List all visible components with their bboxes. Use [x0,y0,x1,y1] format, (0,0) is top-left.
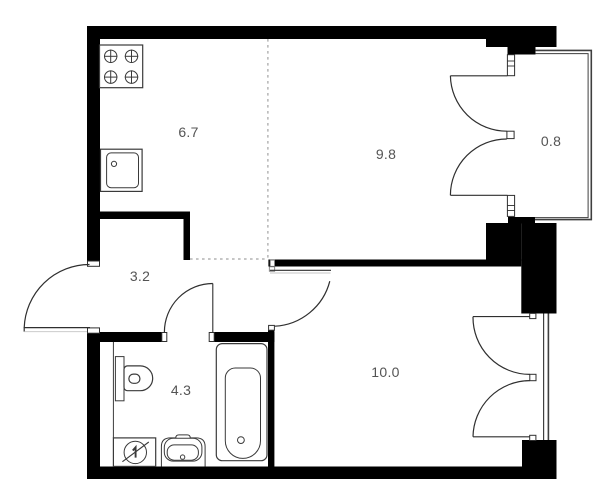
svg-text:10.0: 10.0 [371,364,399,380]
svg-text:4.3: 4.3 [171,382,191,398]
svg-text:6.7: 6.7 [178,124,198,140]
svg-text:0.8: 0.8 [541,133,561,149]
svg-text:3.2: 3.2 [130,268,150,284]
svg-text:9.8: 9.8 [376,146,396,162]
